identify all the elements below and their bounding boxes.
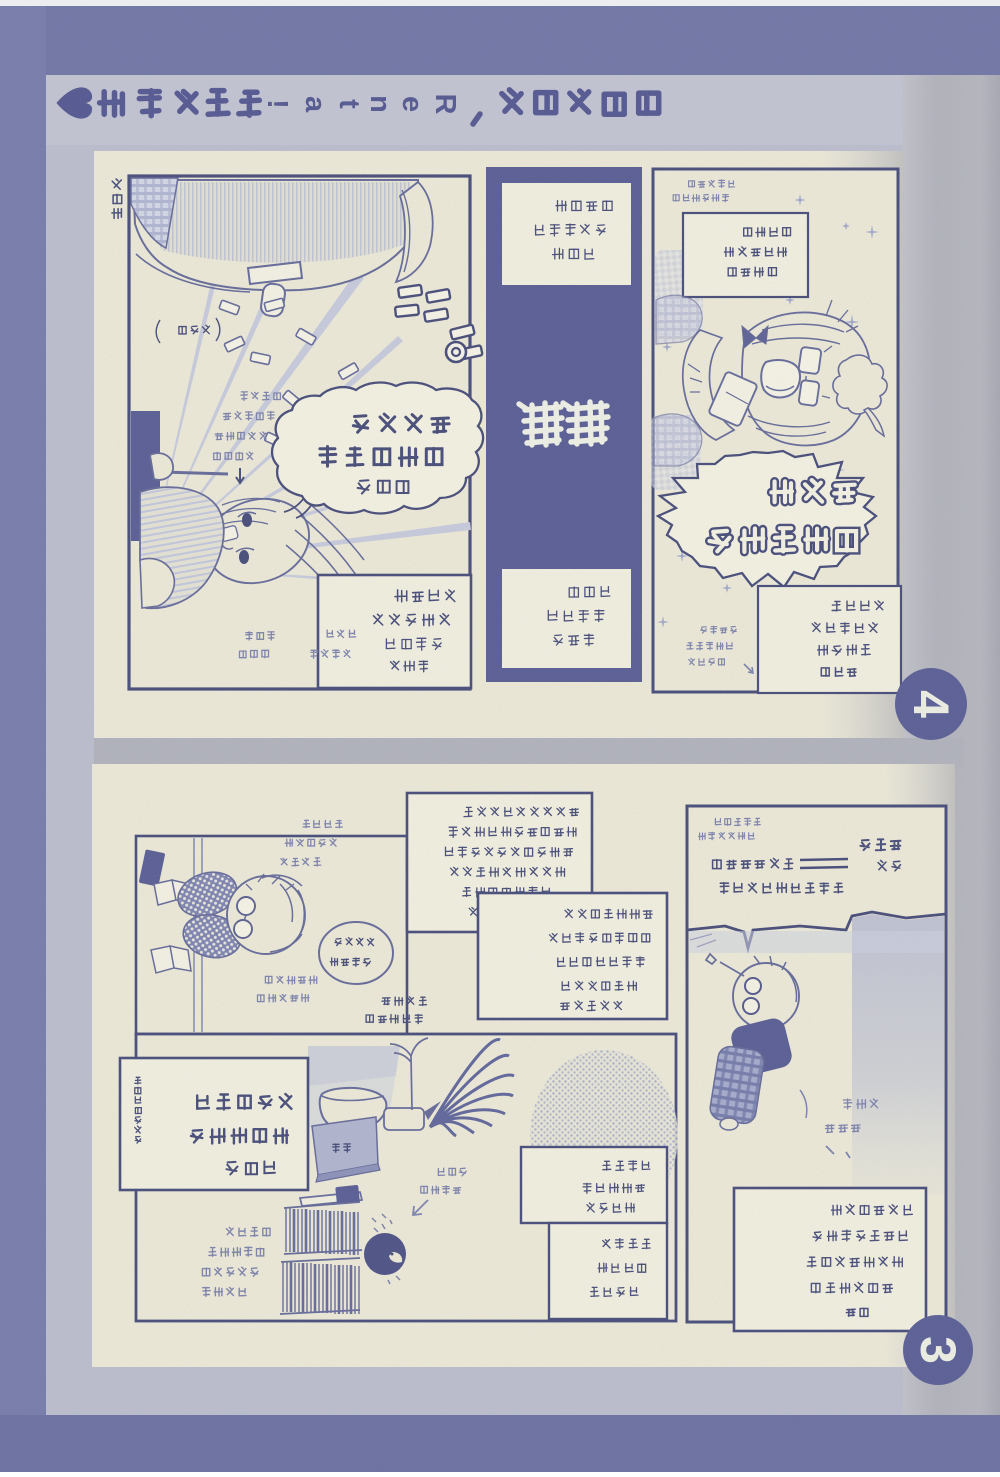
svg-text:R: R	[429, 94, 461, 115]
svg-text:3: 3	[910, 1336, 966, 1364]
svg-text:4: 4	[903, 690, 959, 718]
svg-text:n: n	[364, 95, 396, 113]
svg-text:t: t	[333, 99, 365, 109]
svg-text:!: !	[261, 99, 293, 109]
svg-text:e: e	[396, 96, 428, 112]
svg-text:a: a	[299, 96, 331, 113]
